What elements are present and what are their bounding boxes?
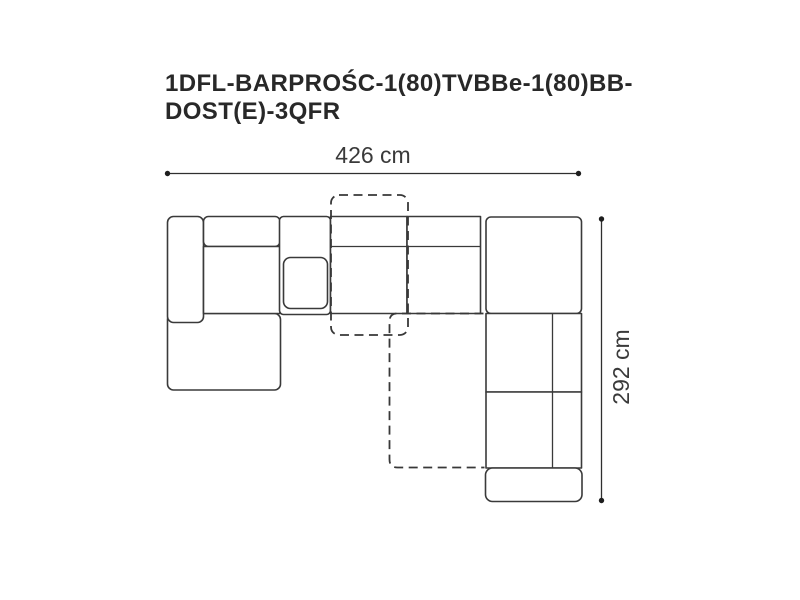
right-seat-1 bbox=[486, 314, 582, 393]
dimension-endpoint-dot bbox=[599, 498, 604, 503]
right-armrest bbox=[486, 468, 583, 502]
ottoman-placement-dashed-outline bbox=[390, 314, 485, 468]
dimension-endpoint-dot bbox=[165, 171, 170, 176]
left-seat-backrest bbox=[204, 217, 281, 247]
bar-console-top bbox=[284, 258, 328, 309]
sofa-outline bbox=[168, 217, 583, 502]
chaise-module bbox=[168, 314, 281, 391]
left-seat bbox=[204, 247, 281, 314]
sofa-schematic-page: 1DFL-BARPROŚC-1(80)TVBBe-1(80)BB- DOST(E… bbox=[0, 0, 800, 600]
middle-seat-1 bbox=[331, 217, 408, 314]
right-seat-2 bbox=[486, 392, 582, 468]
height-dimension-line bbox=[599, 216, 604, 503]
sofa-top-view-diagram bbox=[0, 0, 800, 600]
corner-module bbox=[486, 217, 582, 314]
middle-seat-2 bbox=[407, 217, 481, 314]
width-dimension-line bbox=[165, 171, 581, 176]
left-armrest bbox=[168, 217, 204, 323]
dimension-endpoint-dot bbox=[576, 171, 581, 176]
dimension-endpoint-dot bbox=[599, 216, 604, 221]
